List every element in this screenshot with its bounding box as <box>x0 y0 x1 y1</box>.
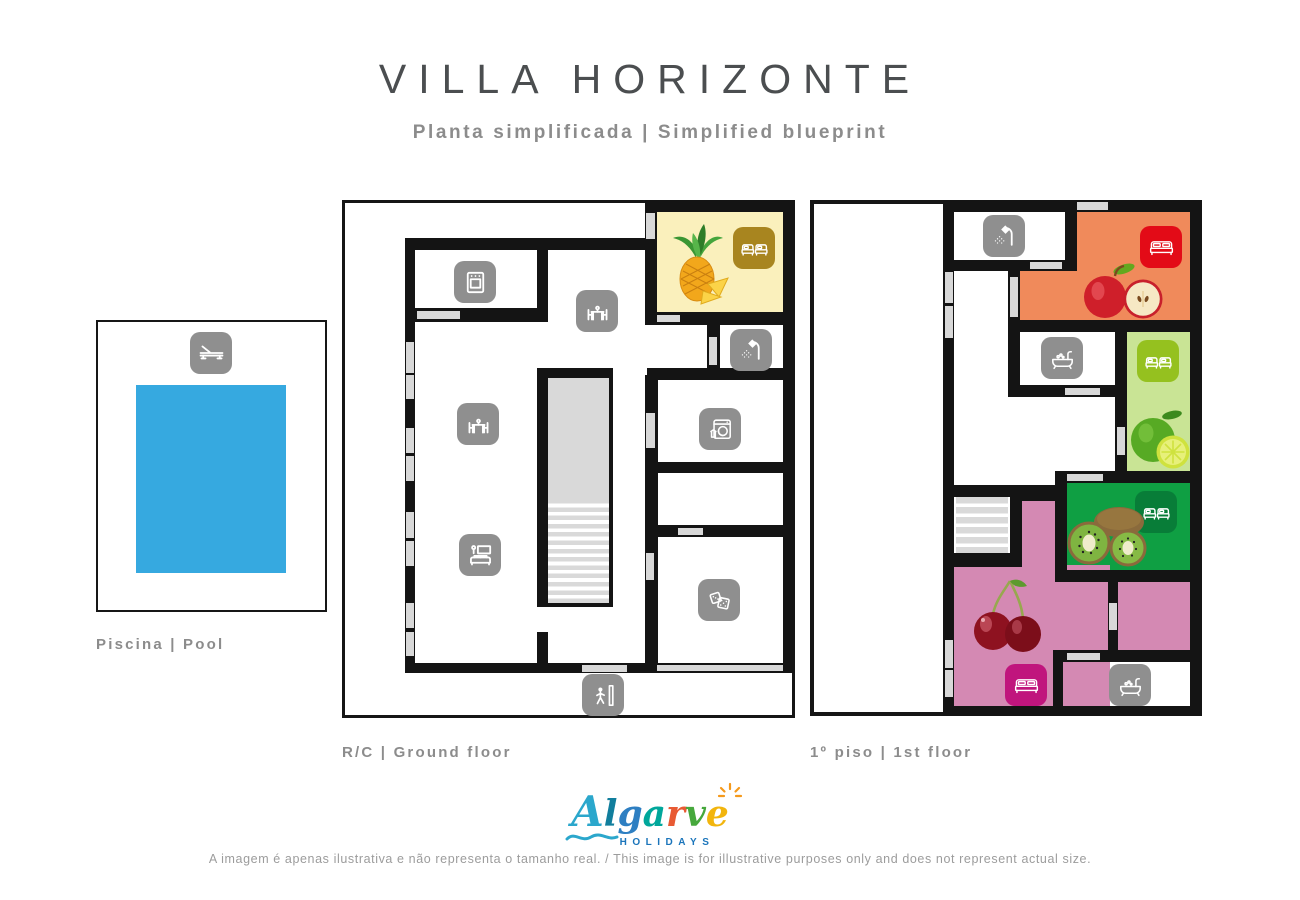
dining-set-icon <box>576 290 618 332</box>
sun-lounger-icon <box>190 332 232 374</box>
window <box>1010 277 1018 317</box>
window <box>646 553 654 580</box>
blueprint-poster: VILLA HORIZONTE Planta simplificada | Si… <box>0 0 1300 900</box>
window <box>1117 427 1125 455</box>
double-bed-icon <box>1005 664 1047 706</box>
cherries-image <box>966 576 1050 656</box>
door-opening <box>1067 474 1103 481</box>
window <box>1077 202 1108 210</box>
wall-segment <box>1190 200 1202 716</box>
window <box>406 541 414 566</box>
window <box>406 375 414 399</box>
window <box>709 337 717 365</box>
wall-segment <box>647 368 795 380</box>
wall-segment <box>783 200 795 673</box>
wall-segment <box>647 462 795 473</box>
bathtub-icon <box>1041 337 1083 379</box>
dining-set-icon <box>457 403 499 445</box>
stair-landing <box>548 378 609 499</box>
window <box>406 428 414 453</box>
apple-image <box>1082 260 1166 320</box>
first-floor-label: 1º piso | 1st floor <box>810 744 972 761</box>
wall-segment <box>1008 385 1117 397</box>
logo-word: Algarve <box>571 792 729 841</box>
window <box>417 311 460 319</box>
window <box>406 342 414 373</box>
entrance-icon <box>582 674 624 716</box>
shower-icon <box>730 329 772 371</box>
door-opening <box>1067 653 1100 660</box>
room-cherry-bedroom <box>1020 501 1057 573</box>
stair-treads <box>956 497 1008 555</box>
window <box>406 512 414 538</box>
window <box>646 413 655 448</box>
wall-segment <box>537 632 548 663</box>
shower-icon <box>983 215 1025 257</box>
lime-image <box>1129 408 1191 470</box>
window <box>945 640 953 668</box>
wall-segment <box>548 603 613 607</box>
oven-icon <box>454 261 496 303</box>
ground-floor-label: R/C | Ground floor <box>342 744 512 761</box>
wall-segment <box>405 238 650 250</box>
disclaimer-text: A imagem é apenas ilustrativa e não repr… <box>0 852 1300 866</box>
door-opening <box>678 528 703 535</box>
door-opening <box>582 665 627 672</box>
window <box>945 670 953 697</box>
wall-segment <box>943 553 1022 567</box>
dice-icon <box>698 579 740 621</box>
wall-segment <box>1008 320 1190 332</box>
wall-segment <box>1115 332 1127 483</box>
window <box>945 272 953 303</box>
window <box>646 213 655 239</box>
window <box>406 456 414 481</box>
twin-beds-icon <box>1137 340 1179 382</box>
algarve-holidays-logo: Algarve HOLIDAYS <box>0 792 1300 848</box>
kiwi-image <box>1064 502 1152 568</box>
window <box>657 315 680 322</box>
door-opening <box>1065 388 1100 395</box>
logo-letter: l <box>604 794 618 834</box>
logo-letter: r <box>666 794 685 834</box>
window <box>406 632 414 656</box>
wall-segment <box>537 368 613 378</box>
stair-treads <box>548 499 609 604</box>
logo-letter: A <box>571 792 604 832</box>
wall-segment <box>537 368 548 607</box>
sofa-tv-icon <box>459 534 501 576</box>
window <box>1109 603 1117 630</box>
wave-swoosh-icon <box>565 829 635 845</box>
sun-rays-icon <box>717 782 743 808</box>
room-cherry-bedroom <box>1116 582 1190 652</box>
wall-segment <box>1055 570 1190 582</box>
pineapple-image <box>660 222 738 306</box>
wall-segment <box>609 372 613 607</box>
logo-letter: a <box>643 794 666 834</box>
pool-water <box>136 385 286 573</box>
washing-machine-icon <box>699 408 741 450</box>
window <box>657 665 783 671</box>
twin-beds-icon <box>733 227 775 269</box>
wall-segment <box>647 525 795 537</box>
wall-segment <box>645 200 795 212</box>
logo-letter: g <box>617 794 642 834</box>
wall-segment <box>1053 650 1063 706</box>
pool-label: Piscina | Pool <box>96 636 224 653</box>
window <box>945 306 953 338</box>
wall-segment <box>1020 491 1057 501</box>
door-opening <box>1030 262 1062 269</box>
page-title: VILLA HORIZONTE <box>0 56 1300 103</box>
window <box>406 603 414 628</box>
logo-letter: v <box>685 794 706 834</box>
bathtub-icon <box>1109 664 1151 706</box>
wall-segment <box>943 706 1202 716</box>
page-subtitle: Planta simplificada | Simplified bluepri… <box>0 122 1300 144</box>
